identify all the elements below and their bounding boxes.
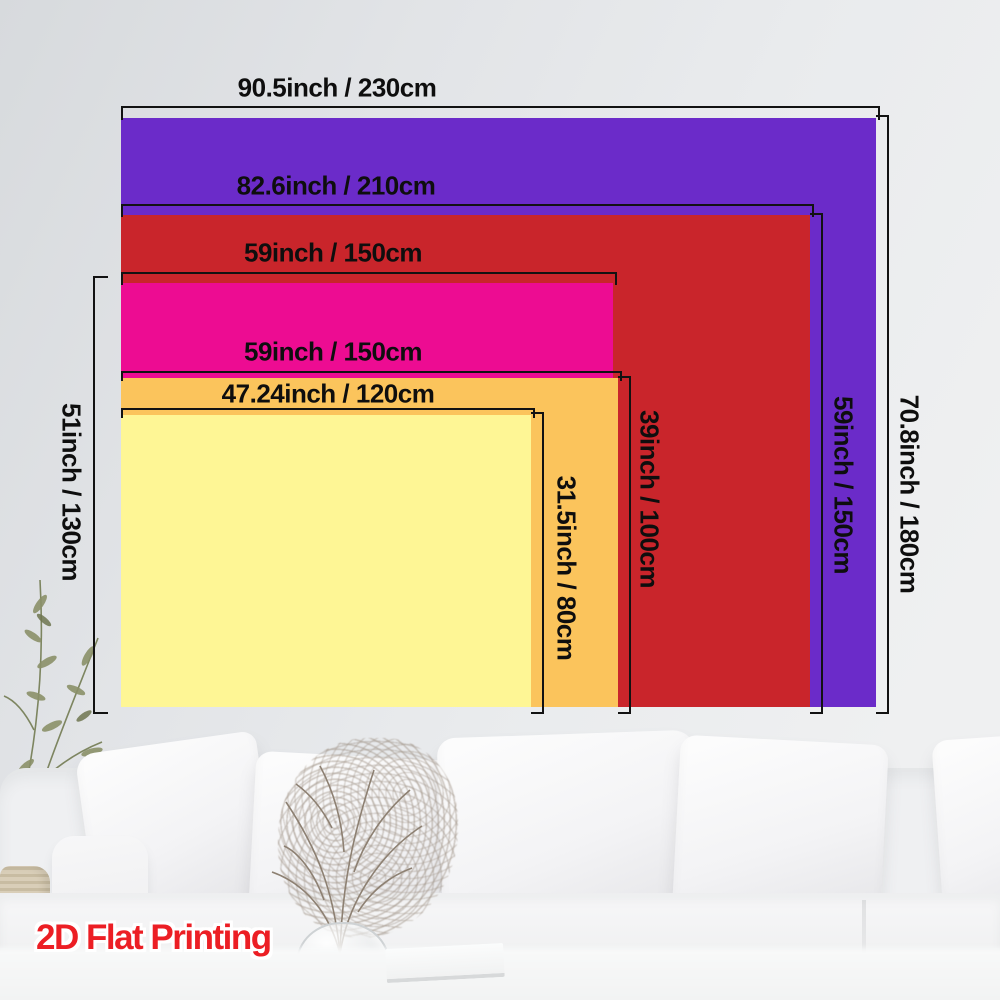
height-bracket-180cm xyxy=(876,115,889,714)
width-bracket-230cm xyxy=(121,106,880,120)
height-label-100cm: 39inch / 100cm xyxy=(634,410,665,588)
dried-flower-branches xyxy=(262,732,437,954)
print-type-watermark: 2D Flat Printing xyxy=(36,918,271,958)
width-bracket-150cm-magenta xyxy=(121,272,617,285)
width-bracket-210cm xyxy=(121,204,814,217)
width-label-120cm: 47.24inch / 120cm xyxy=(222,379,435,410)
height-bracket-130cm xyxy=(93,276,108,714)
height-label-180cm: 70.8inch / 180cm xyxy=(894,395,925,594)
height-label-130cm: 51inch / 130cm xyxy=(56,403,87,581)
height-label-80cm: 31.5inch / 80cm xyxy=(551,476,582,661)
width-label-150cm-orange: 59inch / 150cm xyxy=(244,337,422,368)
width-label-230cm: 90.5inch / 230cm xyxy=(238,73,437,104)
height-bracket-150cm xyxy=(810,213,823,714)
width-bracket-120cm xyxy=(121,408,535,418)
product-size-chart-image: 90.5inch / 230cm 82.6inch / 210cm 59inch… xyxy=(0,0,1000,1000)
size-rect-120x80 xyxy=(121,415,531,707)
width-label-150cm-magenta: 59inch / 150cm xyxy=(244,238,422,269)
book-on-table xyxy=(385,943,505,983)
height-bracket-80cm xyxy=(531,412,544,714)
height-label-150cm: 59inch / 150cm xyxy=(828,396,859,574)
width-label-210cm: 82.6inch / 210cm xyxy=(237,171,436,202)
height-bracket-100cm xyxy=(618,376,631,714)
